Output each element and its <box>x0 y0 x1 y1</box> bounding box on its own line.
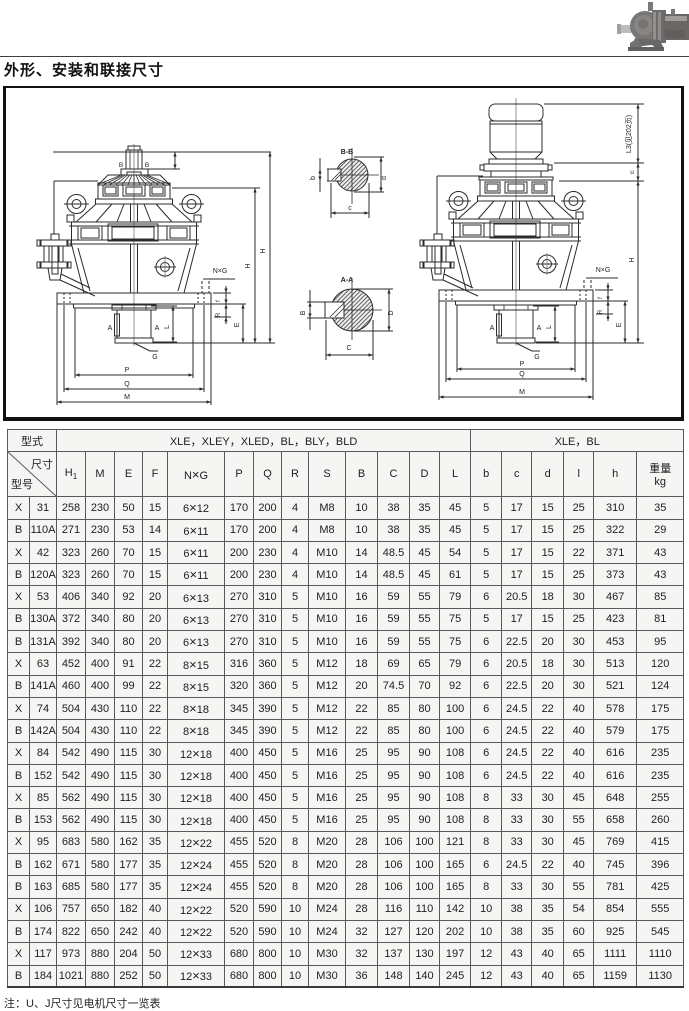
svg-text:R: R <box>598 309 604 314</box>
svg-text:A: A <box>155 325 160 332</box>
svg-text:Q: Q <box>124 381 130 388</box>
svg-text:B: B <box>145 162 149 169</box>
svg-text:A-A: A-A <box>341 277 353 284</box>
svg-text:M: M <box>519 389 525 396</box>
svg-text:E: E <box>234 322 241 327</box>
svg-text:b: b <box>310 176 317 180</box>
svg-text:D: D <box>388 310 395 315</box>
svg-text:L: L <box>164 325 171 329</box>
svg-text:H: H <box>629 257 636 262</box>
svg-text:L3(见202页): L3(见202页) <box>625 115 633 153</box>
svg-text:C: C <box>346 345 351 352</box>
svg-text:G: G <box>152 354 157 361</box>
svg-text:M: M <box>124 394 130 401</box>
svg-text:P: P <box>125 367 130 374</box>
svg-text:H: H <box>245 263 252 268</box>
svg-text:N×G: N×G <box>596 267 611 274</box>
svg-text:B-B: B-B <box>341 149 353 156</box>
svg-text:A: A <box>490 325 495 332</box>
svg-text:u: u <box>630 169 634 176</box>
svg-text:L: L <box>546 325 553 329</box>
svg-text:G: G <box>534 354 539 361</box>
svg-text:N×G: N×G <box>213 268 228 275</box>
svg-text:f: f <box>598 297 604 299</box>
svg-text:R: R <box>216 312 222 317</box>
svg-text:A: A <box>108 325 113 332</box>
svg-text:f: f <box>216 300 222 302</box>
svg-text:c: c <box>348 205 352 212</box>
svg-text:d: d <box>381 176 388 180</box>
svg-text:P: P <box>520 361 525 368</box>
svg-text:H: H <box>260 248 267 253</box>
svg-text:B: B <box>300 310 307 315</box>
svg-text:Q: Q <box>519 371 525 378</box>
svg-text:A: A <box>537 325 542 332</box>
svg-text:E: E <box>616 322 623 327</box>
svg-text:B: B <box>119 162 123 169</box>
